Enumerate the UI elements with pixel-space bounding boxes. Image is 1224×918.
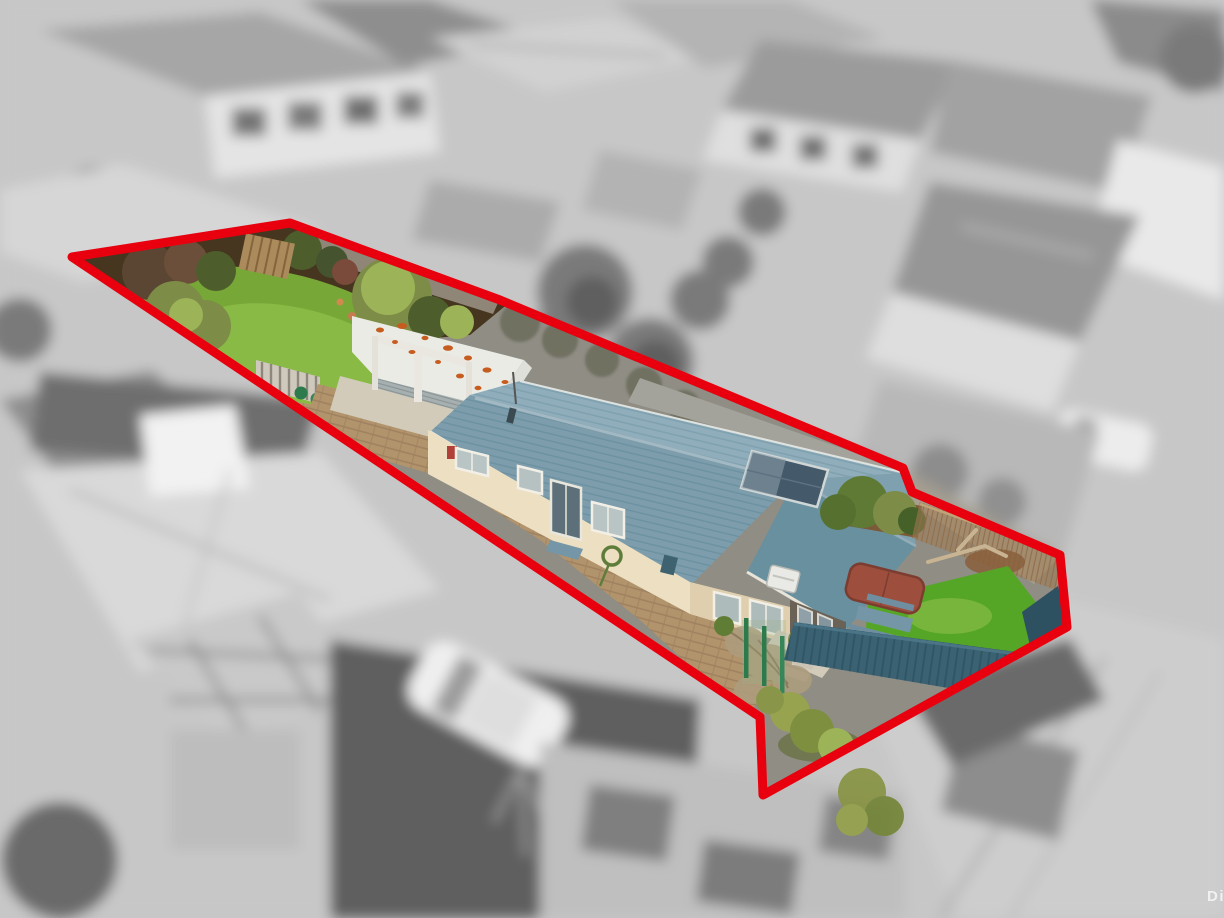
aerial-photo: Di xyxy=(0,0,1224,918)
window xyxy=(518,466,542,494)
garage-door-pillar xyxy=(414,346,422,402)
screenshot-root: Di xyxy=(0,0,1224,918)
bg-tree xyxy=(2,802,118,918)
watermark-text: Di xyxy=(1207,888,1224,905)
chain-link-gate xyxy=(742,618,786,694)
glazed-door xyxy=(546,480,583,560)
planter-pot xyxy=(295,387,308,400)
